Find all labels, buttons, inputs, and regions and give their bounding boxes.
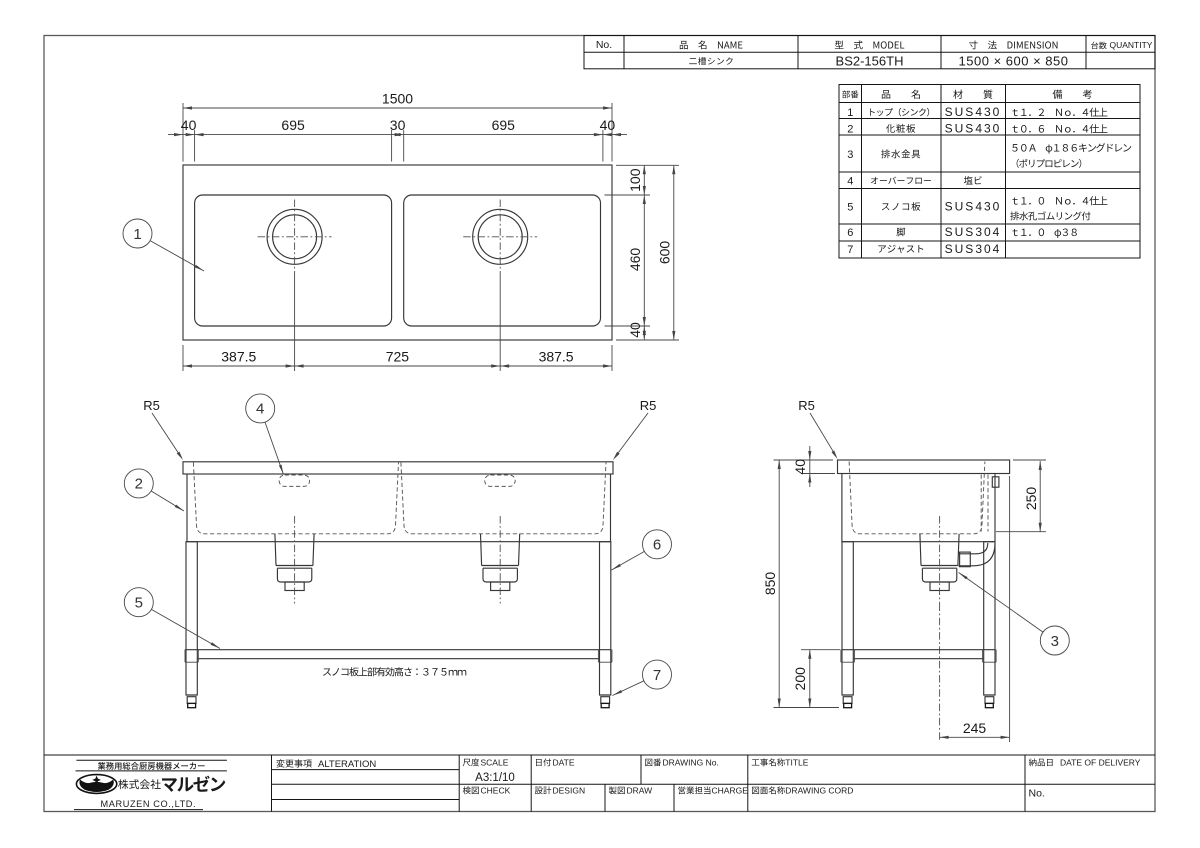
svg-text:3: 3 xyxy=(847,149,853,161)
svg-text:2: 2 xyxy=(847,124,853,136)
svg-text:ALTERATION: ALTERATION xyxy=(318,759,376,770)
svg-text:460: 460 xyxy=(627,248,643,272)
svg-text:BS2-156TH: BS2-156TH xyxy=(836,54,904,69)
svg-text:100: 100 xyxy=(627,168,643,192)
svg-text:QUANTITY: QUANTITY xyxy=(1110,40,1153,50)
svg-text:DRAW: DRAW xyxy=(627,786,653,796)
svg-text:2: 2 xyxy=(135,476,143,493)
svg-text:6: 6 xyxy=(847,227,853,239)
svg-text:40: 40 xyxy=(600,117,616,133)
svg-text:695: 695 xyxy=(492,117,516,133)
svg-text:DRAWING CORD: DRAWING CORD xyxy=(785,786,853,796)
svg-text:695: 695 xyxy=(281,117,305,133)
svg-text:A3:1/10: A3:1/10 xyxy=(475,772,515,784)
svg-text:MARUZEN CO.,LTD.: MARUZEN CO.,LTD. xyxy=(101,799,197,809)
svg-text:TITLE: TITLE xyxy=(785,758,808,768)
svg-text:DRAWING No.: DRAWING No. xyxy=(663,758,719,768)
svg-text:6: 6 xyxy=(653,537,661,554)
svg-text:30: 30 xyxy=(390,117,406,133)
svg-text:40: 40 xyxy=(792,459,808,475)
svg-text:1: 1 xyxy=(133,226,141,243)
svg-text:40: 40 xyxy=(181,117,197,133)
svg-text:7: 7 xyxy=(847,244,853,256)
svg-text:40: 40 xyxy=(627,322,643,338)
svg-text:4: 4 xyxy=(847,176,853,188)
svg-text:387.5: 387.5 xyxy=(221,349,256,365)
svg-text:725: 725 xyxy=(386,349,410,365)
svg-text:1500 × 600 × 850: 1500 × 600 × 850 xyxy=(959,54,1069,69)
svg-text:R5: R5 xyxy=(143,398,160,413)
svg-text:SUS304: SUS304 xyxy=(945,225,1002,239)
svg-text:SUS430: SUS430 xyxy=(945,200,1002,214)
svg-text:5: 5 xyxy=(135,595,143,612)
svg-text:No.: No. xyxy=(1029,788,1045,800)
svg-text:R5: R5 xyxy=(640,398,657,413)
svg-text:CHECK: CHECK xyxy=(481,786,511,796)
svg-text:7: 7 xyxy=(653,667,661,684)
svg-text:SUS430: SUS430 xyxy=(945,105,1002,119)
svg-text:5: 5 xyxy=(847,202,853,214)
svg-text:R5: R5 xyxy=(798,398,815,413)
svg-text:CHARGE: CHARGE xyxy=(712,786,749,796)
svg-text:850: 850 xyxy=(762,572,778,596)
svg-text:DATE OF DELIVERY: DATE OF DELIVERY xyxy=(1060,758,1141,768)
svg-text:SUS430: SUS430 xyxy=(945,122,1002,136)
svg-text:250: 250 xyxy=(1023,487,1039,511)
svg-text:3: 3 xyxy=(1051,633,1059,650)
svg-text:SCALE: SCALE xyxy=(481,758,509,768)
svg-text:200: 200 xyxy=(792,667,808,691)
svg-text:1: 1 xyxy=(847,107,853,119)
svg-text:1500: 1500 xyxy=(382,91,413,107)
svg-text:387.5: 387.5 xyxy=(539,349,574,365)
svg-text:DATE: DATE xyxy=(553,758,575,768)
svg-text:DESIGN: DESIGN xyxy=(553,786,586,796)
svg-text:SUS304: SUS304 xyxy=(945,242,1002,256)
svg-text:245: 245 xyxy=(963,720,987,736)
svg-text:600: 600 xyxy=(657,241,673,265)
svg-text:No.: No. xyxy=(596,39,612,51)
svg-text:4: 4 xyxy=(256,401,264,418)
